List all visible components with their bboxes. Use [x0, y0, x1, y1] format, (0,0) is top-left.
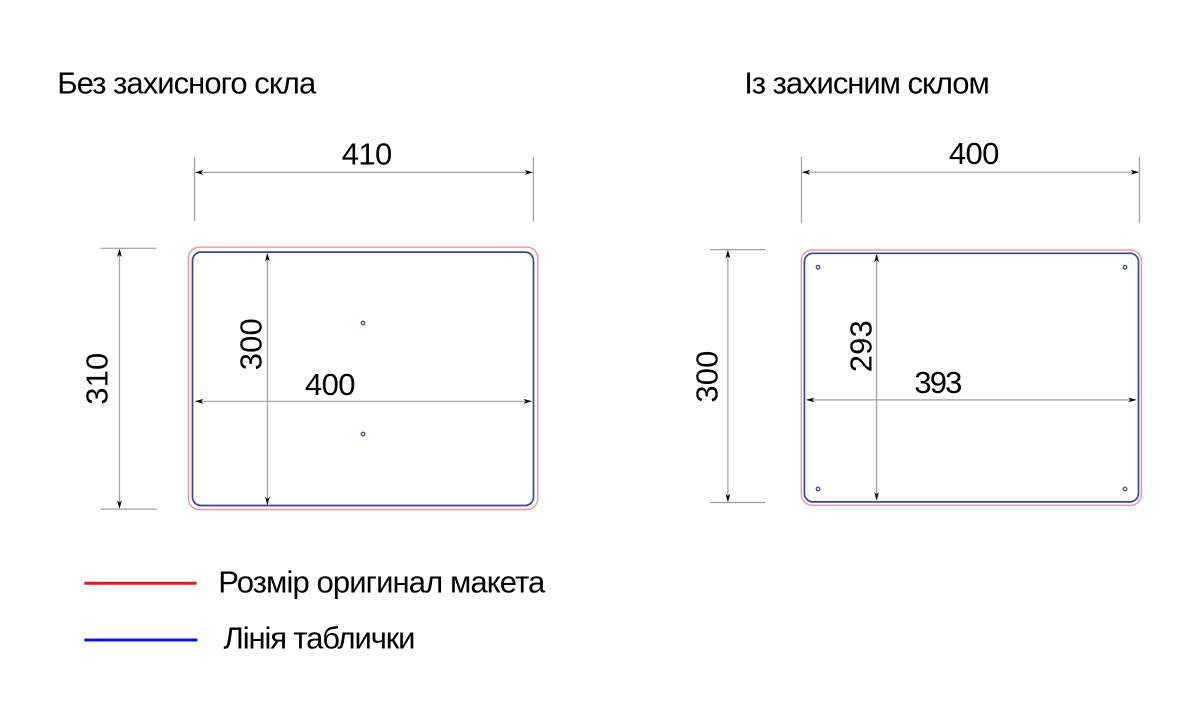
- svg-text:400: 400: [305, 367, 356, 402]
- svg-text:Розмір оригинал макета: Розмір оригинал макета: [218, 564, 546, 599]
- svg-text:300: 300: [689, 351, 724, 403]
- svg-text:Лінія таблички: Лінія таблички: [224, 620, 416, 655]
- svg-text:Без захисного скла: Без захисного скла: [57, 66, 317, 101]
- svg-text:310: 310: [80, 353, 115, 405]
- svg-text:293: 293: [844, 320, 879, 372]
- svg-text:400: 400: [949, 136, 1000, 171]
- svg-text:393: 393: [914, 365, 962, 400]
- svg-text:410: 410: [342, 136, 393, 171]
- svg-text:300: 300: [234, 318, 269, 370]
- svg-text:Із захисним склом: Із захисним склом: [744, 66, 990, 101]
